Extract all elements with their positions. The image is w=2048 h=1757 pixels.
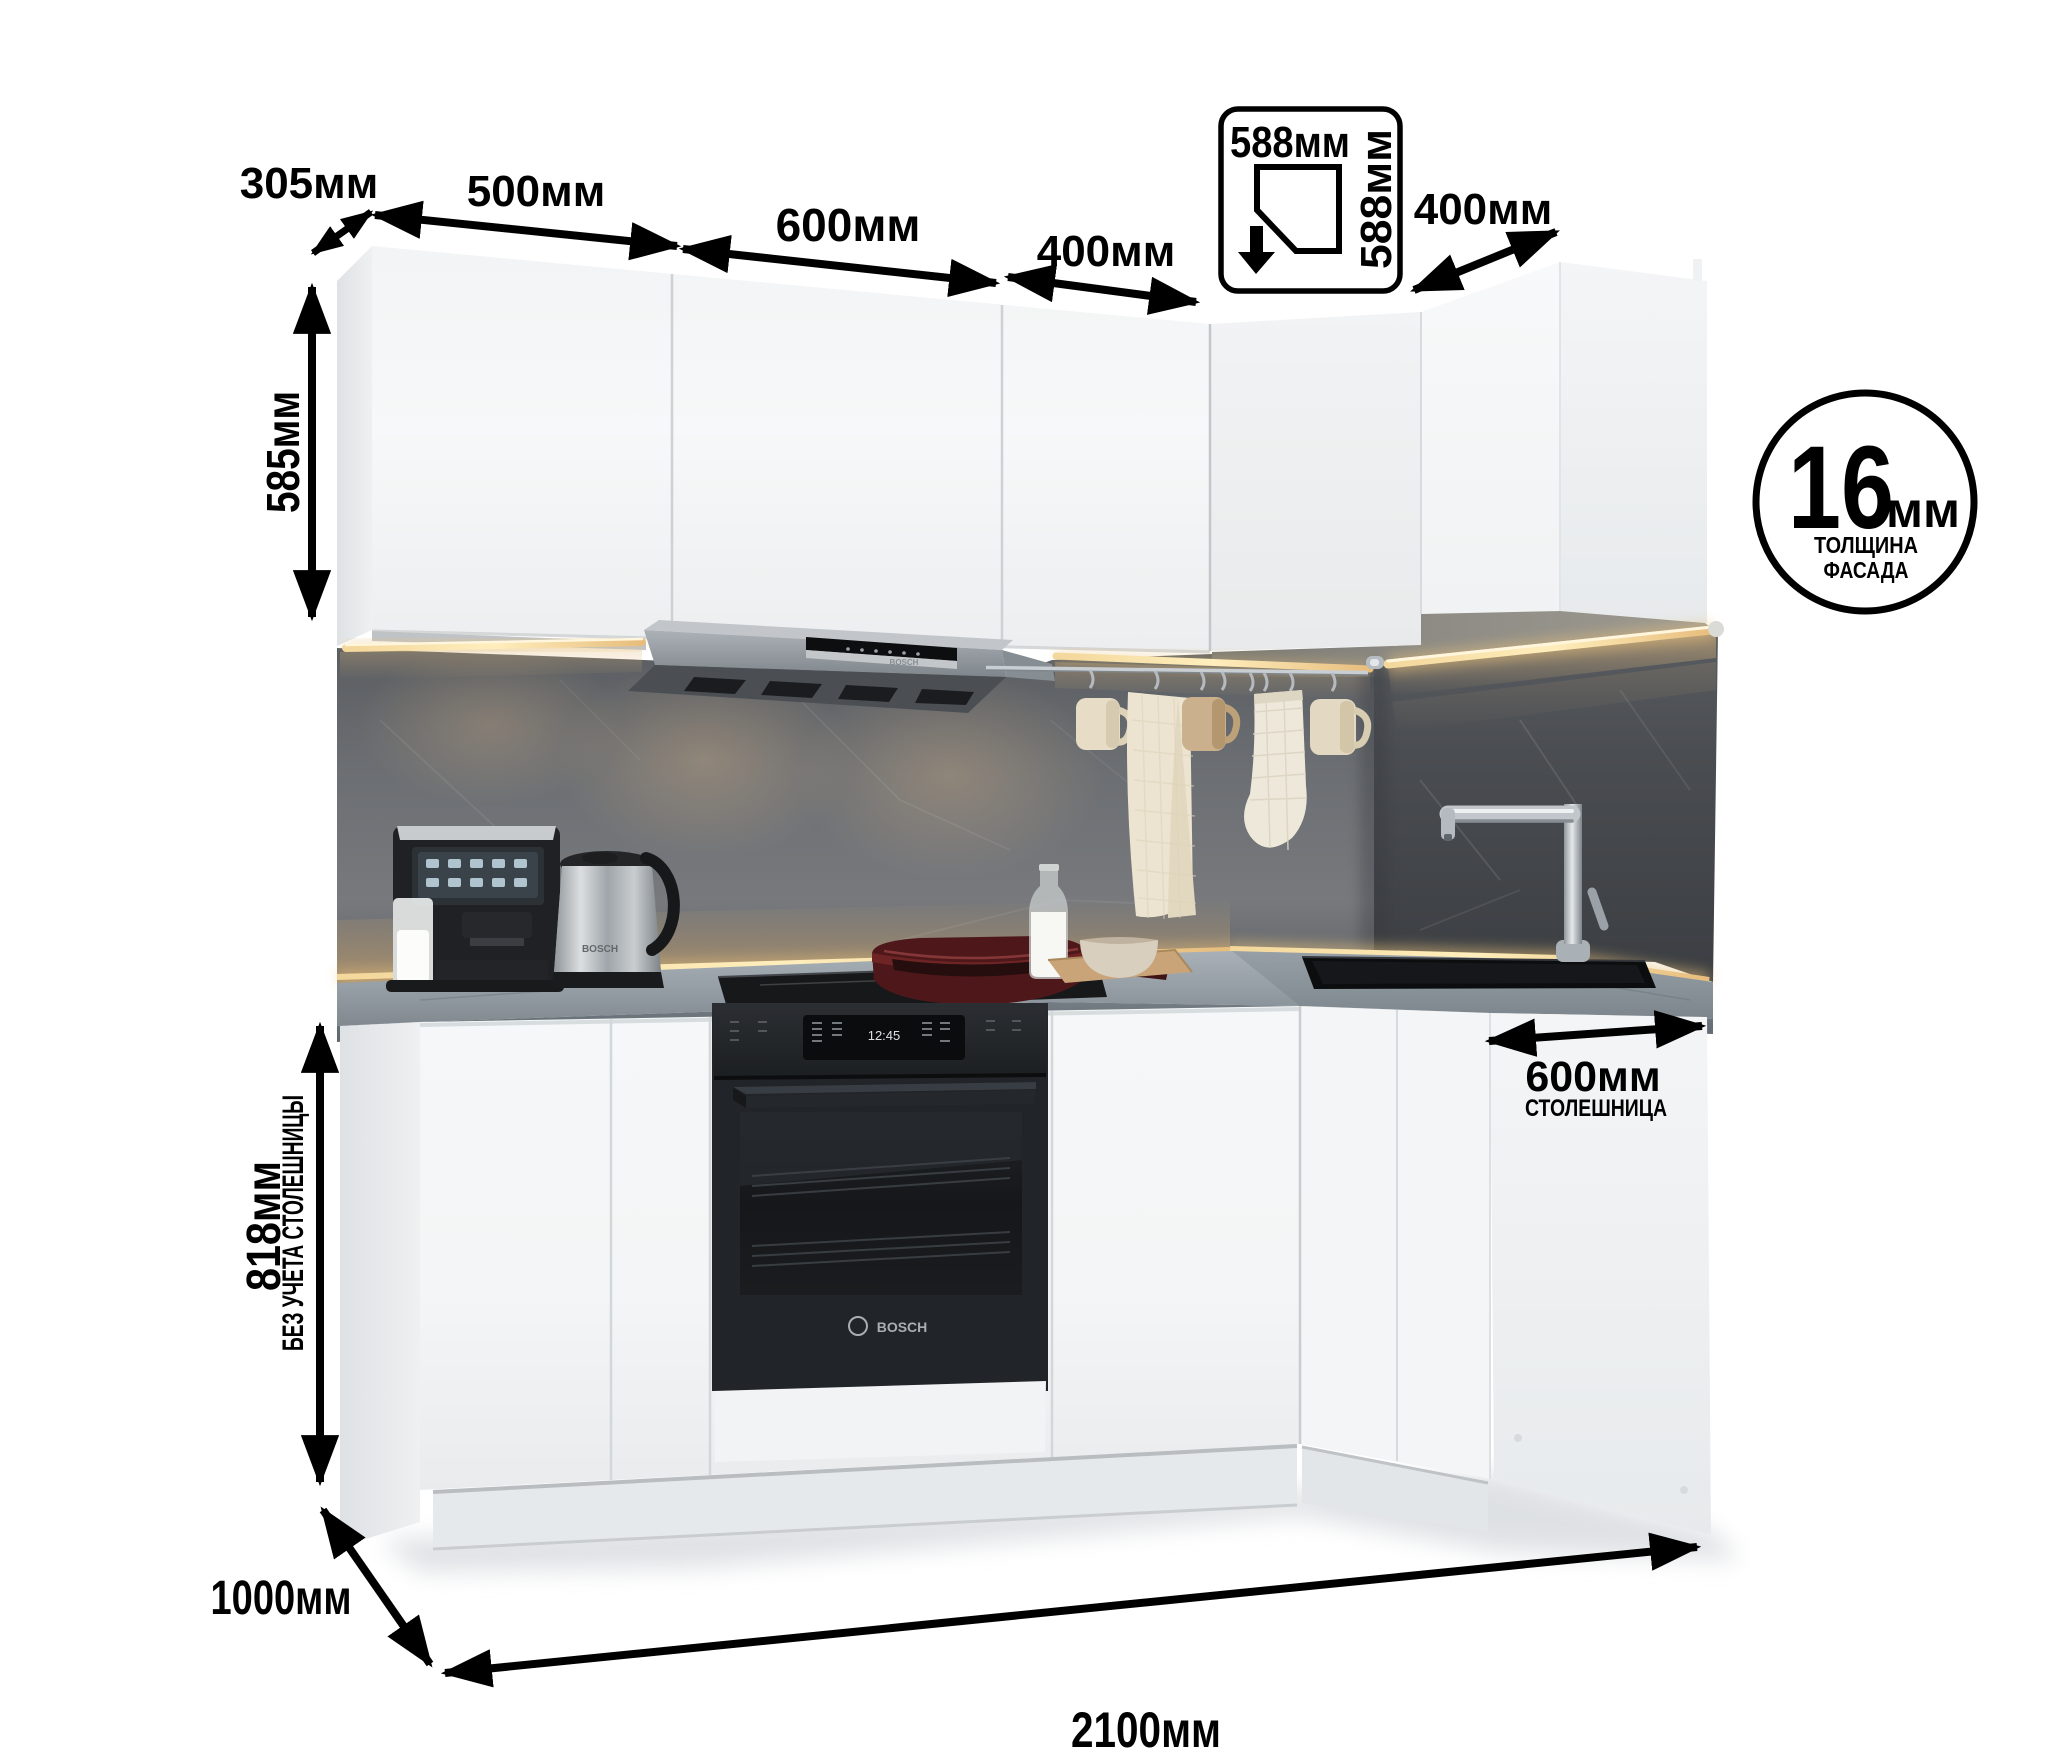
svg-text:БЕЗ УЧЕТА СТОЛЕШНИЦЫ: БЕЗ УЧЕТА СТОЛЕШНИЦЫ <box>277 1095 310 1351</box>
svg-text:ТОЛЩИНА: ТОЛЩИНА <box>1814 532 1918 558</box>
svg-text:ФАСАДА: ФАСАДА <box>1824 557 1909 583</box>
svg-text:588мм: 588мм <box>1352 129 1401 269</box>
svg-text:2100мм: 2100мм <box>1071 1702 1221 1757</box>
svg-text:BOSCH: BOSCH <box>877 1319 928 1335</box>
svg-text:12:45: 12:45 <box>868 1028 901 1043</box>
svg-text:BOSCH: BOSCH <box>582 944 618 955</box>
svg-text:305мм: 305мм <box>240 159 379 208</box>
svg-text:400мм: 400мм <box>1414 185 1553 234</box>
svg-text:585мм: 585мм <box>257 391 309 513</box>
svg-text:СТОЛЕШНИЦА: СТОЛЕШНИЦА <box>1525 1095 1667 1122</box>
svg-text:600мм: 600мм <box>1525 1053 1660 1101</box>
svg-text:400мм: 400мм <box>1037 227 1176 276</box>
svg-text:BOSCH: BOSCH <box>890 658 919 667</box>
svg-text:600мм: 600мм <box>776 199 921 251</box>
svg-text:500мм: 500мм <box>467 167 606 216</box>
svg-text:588мм: 588мм <box>1230 118 1350 167</box>
svg-text:мм: мм <box>1886 482 1960 538</box>
svg-text:1000мм: 1000мм <box>211 1572 352 1625</box>
